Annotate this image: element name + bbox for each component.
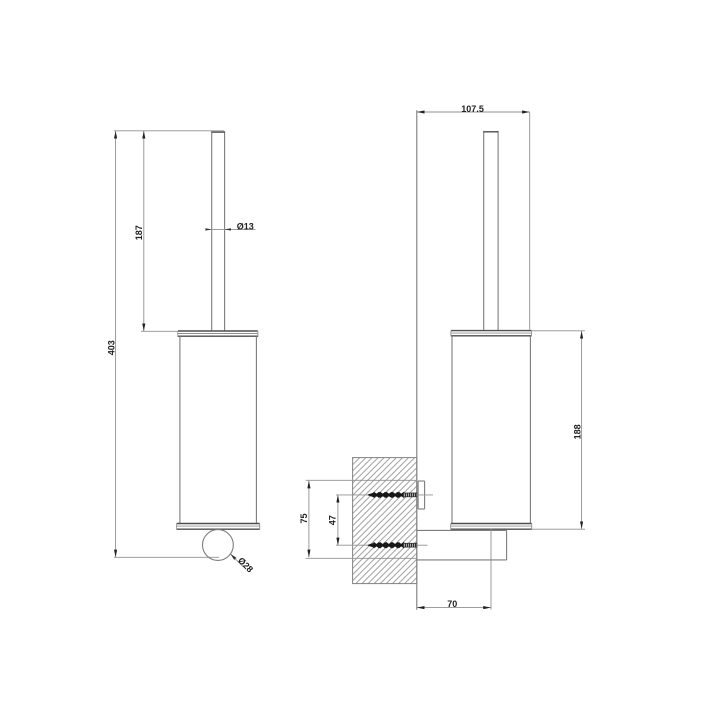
- svg-text:Ø13: Ø13: [237, 222, 254, 232]
- svg-text:47: 47: [327, 515, 337, 525]
- svg-text:75: 75: [299, 513, 309, 523]
- svg-text:403: 403: [106, 340, 116, 355]
- svg-text:187: 187: [134, 225, 144, 240]
- svg-text:Ø28: Ø28: [236, 555, 255, 574]
- svg-text:70: 70: [447, 599, 457, 609]
- svg-text:107.5: 107.5: [461, 104, 484, 114]
- svg-text:188: 188: [573, 424, 583, 439]
